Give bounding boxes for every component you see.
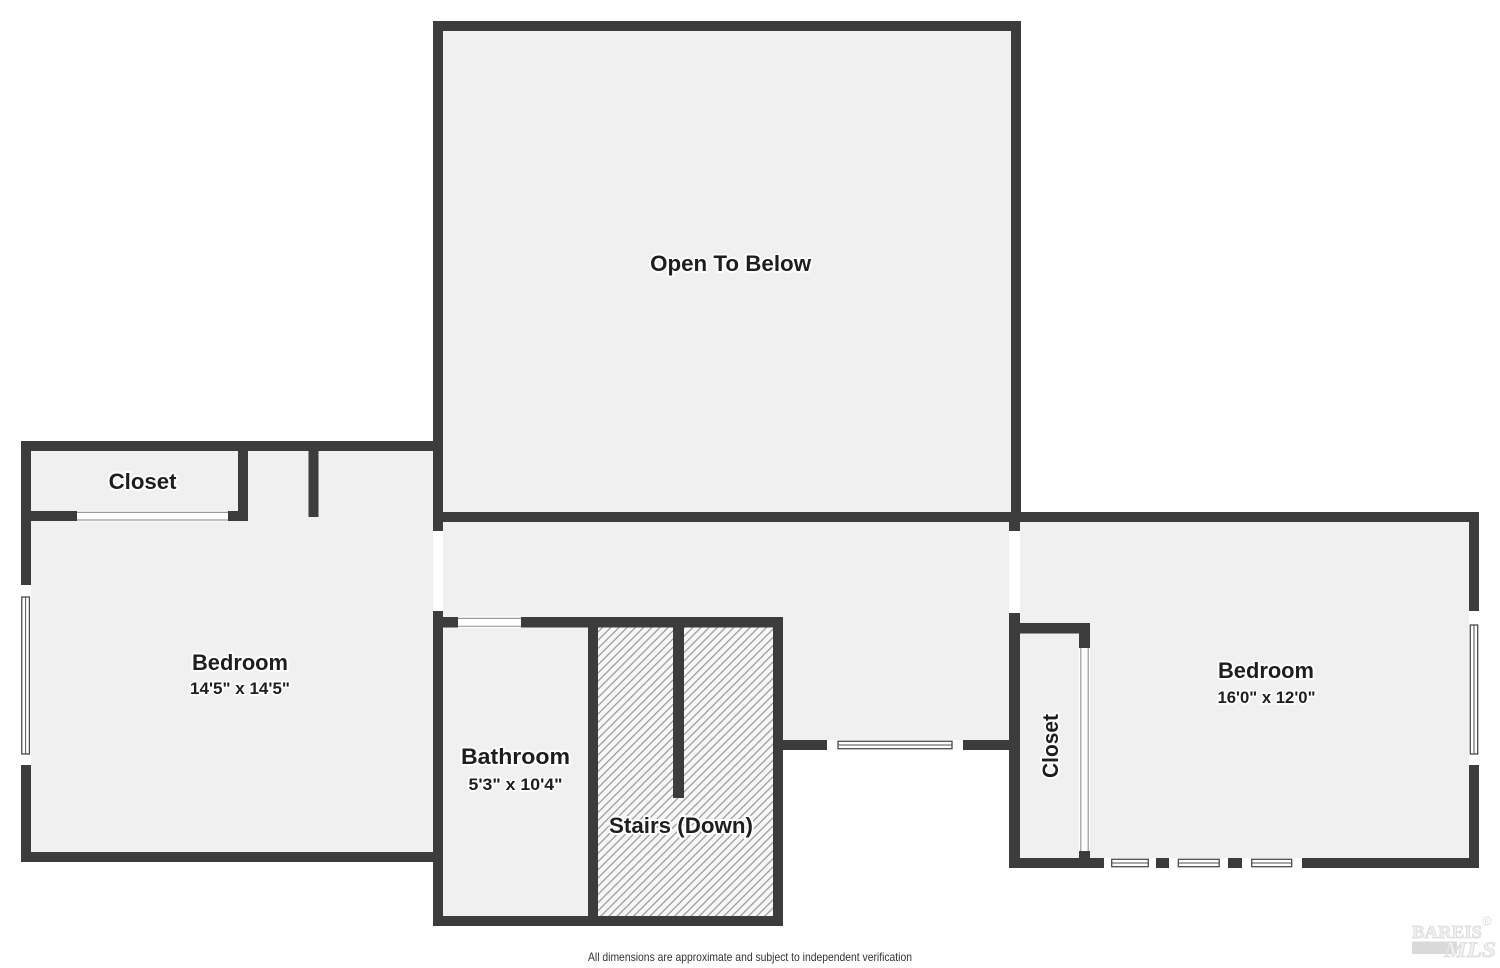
svg-text:Bedroom: Bedroom [1218, 658, 1314, 683]
svg-text:R: R [1485, 920, 1490, 926]
svg-text:Bathroom: Bathroom [461, 744, 570, 769]
svg-text:Open To Below: Open To Below [650, 251, 811, 276]
svg-text:Stairs (Down): Stairs (Down) [609, 813, 753, 838]
svg-text:14'5" x 14'5": 14'5" x 14'5" [190, 679, 290, 698]
svg-text:5'3" x 10'4": 5'3" x 10'4" [469, 775, 563, 794]
svg-text:Closet: Closet [1038, 714, 1063, 778]
svg-text:16'0" x 12'0": 16'0" x 12'0" [1218, 688, 1316, 707]
svg-text:Bedroom: Bedroom [192, 650, 288, 675]
svg-text:All dimensions are approximate: All dimensions are approximate and subje… [588, 950, 912, 964]
svg-text:MLS: MLS [1443, 937, 1496, 962]
svg-text:Closet: Closet [109, 469, 177, 494]
